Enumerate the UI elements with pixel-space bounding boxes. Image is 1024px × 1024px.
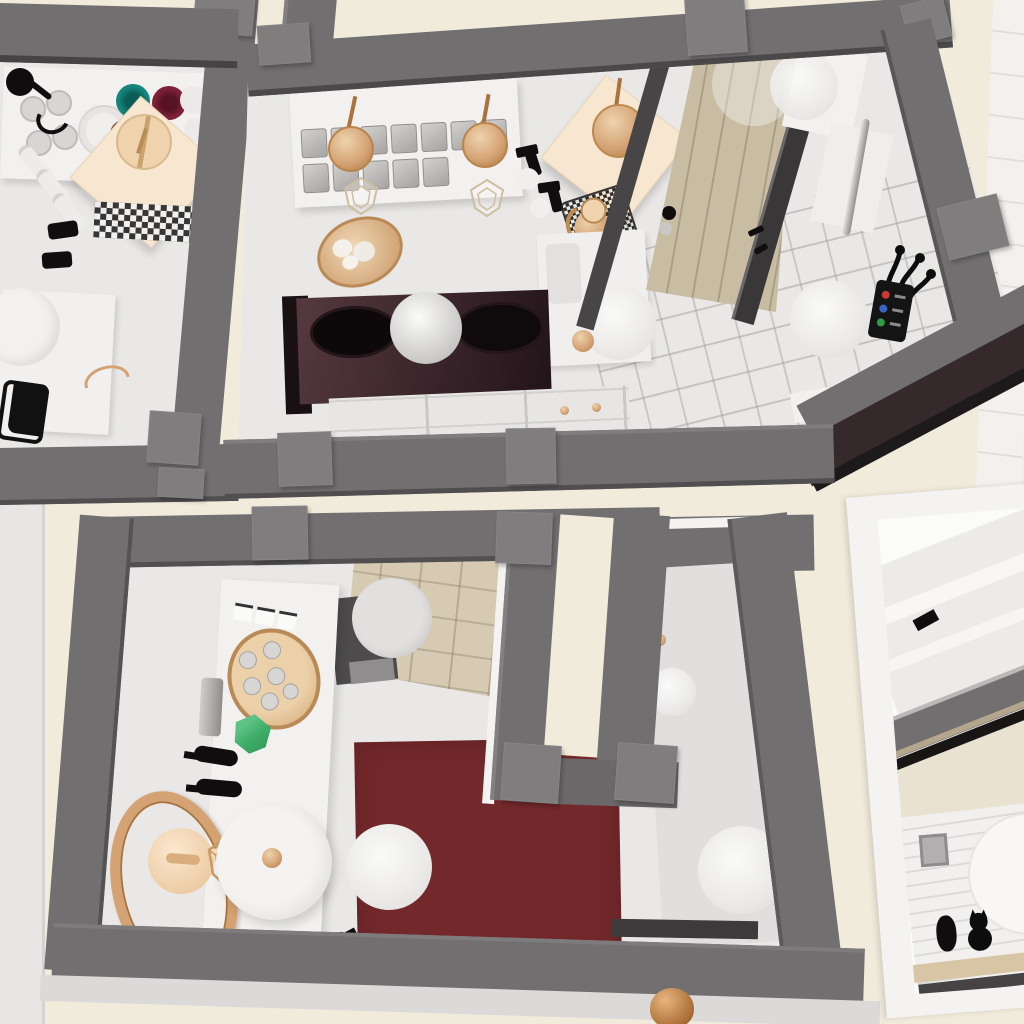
bar-glass [390,123,417,153]
panel-label-line [892,308,903,313]
copper-disc-1 [328,126,374,172]
wood-stool [116,114,172,170]
tray-glass [265,665,288,688]
junction-cap-2 [157,467,205,499]
silver-grinder [198,677,223,736]
scene-render [0,0,1024,1024]
cat-silhouette-icon [961,908,998,953]
white-jar-2 [530,198,550,218]
bar-top-cap-left [257,22,312,66]
pantry-top-wall [0,3,239,69]
bar-glass [422,157,449,187]
dark-wall-insert [612,919,758,940]
bar-top-cap-mid [684,0,748,56]
white-jar-1 [517,168,539,190]
small-picture-frame [919,833,949,867]
menu-card [233,603,254,623]
bar-glass [300,128,327,158]
wire-pendant-icon [468,178,506,218]
table-copper-dot [262,848,282,868]
copper-floor-dot [572,330,594,352]
dark-beam-cap [349,658,395,684]
sink-basin [545,243,582,305]
tray-glass [241,675,264,698]
bar-glass [302,163,329,193]
tray-glass [237,649,260,672]
side-view-content [878,507,1024,994]
junction-cap-1 [146,410,202,466]
black-jar-2 [41,251,72,269]
drawer-knob [560,406,569,415]
bottom-wall-cap-2 [506,428,557,485]
bar-glass [420,122,447,152]
bottom-wall-cap-1 [277,431,333,487]
nook-stool-top [770,52,838,120]
door-knob [662,206,676,220]
patterned-tile-mat [93,201,199,242]
bar-glass [392,158,419,188]
menu-card [277,611,298,631]
corridor-cap-left [500,742,562,804]
white-sphere-lamp [390,292,462,364]
panel-label-line [894,294,905,299]
wire-pendant-icon [342,176,380,216]
panel-label-line [890,322,901,327]
corridor-cap-top [495,511,553,565]
panel-button-blue [879,304,888,313]
copper-jar-bottom [650,988,694,1024]
drawer-knob [592,403,601,412]
corridor-cap-right [614,742,678,804]
copper-disc-2 [462,122,508,168]
menu-card [255,607,276,627]
tray-glass [258,690,281,713]
gray-stool [352,578,432,658]
side-view-frame [846,482,1024,1018]
black-bottle-neck [186,784,201,792]
tray-glass [281,681,301,701]
left-door-panel [0,478,45,1024]
black-white-item [0,379,50,445]
nook-stool-bottom [790,280,868,358]
panel-button-red [881,290,890,299]
rug-white-stool [346,824,432,910]
tray-glass [261,639,284,662]
lounge-top-cap [252,506,309,561]
panel-button-green [876,318,885,327]
door-knob-plate [659,222,672,235]
